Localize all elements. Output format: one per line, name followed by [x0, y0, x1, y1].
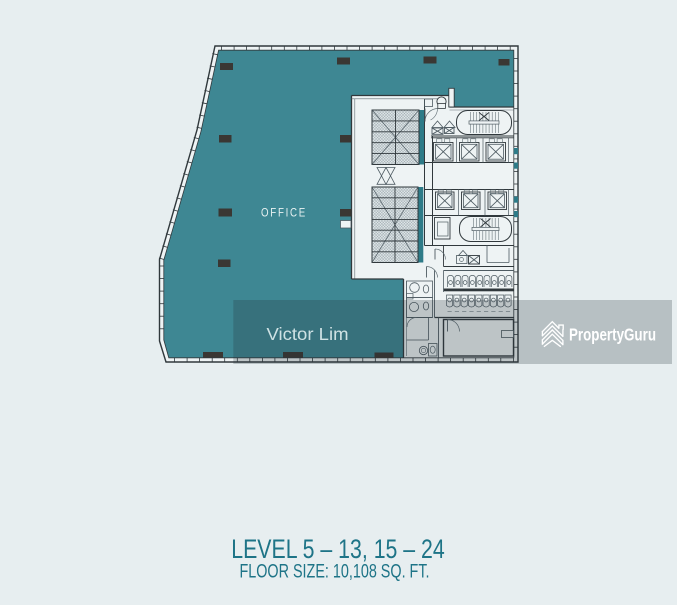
svg-text:Victor Lim: Victor Lim — [267, 324, 349, 344]
svg-text:LEVEL 5 – 13, 15 – 24: LEVEL 5 – 13, 15 – 24 — [231, 534, 445, 564]
svg-text:PropertyGuru: PropertyGuru — [569, 325, 656, 345]
svg-text:OFFICE: OFFICE — [261, 206, 307, 220]
svg-text:FLOOR SIZE: 10,108 SQ. FT.: FLOOR SIZE: 10,108 SQ. FT. — [240, 562, 430, 583]
